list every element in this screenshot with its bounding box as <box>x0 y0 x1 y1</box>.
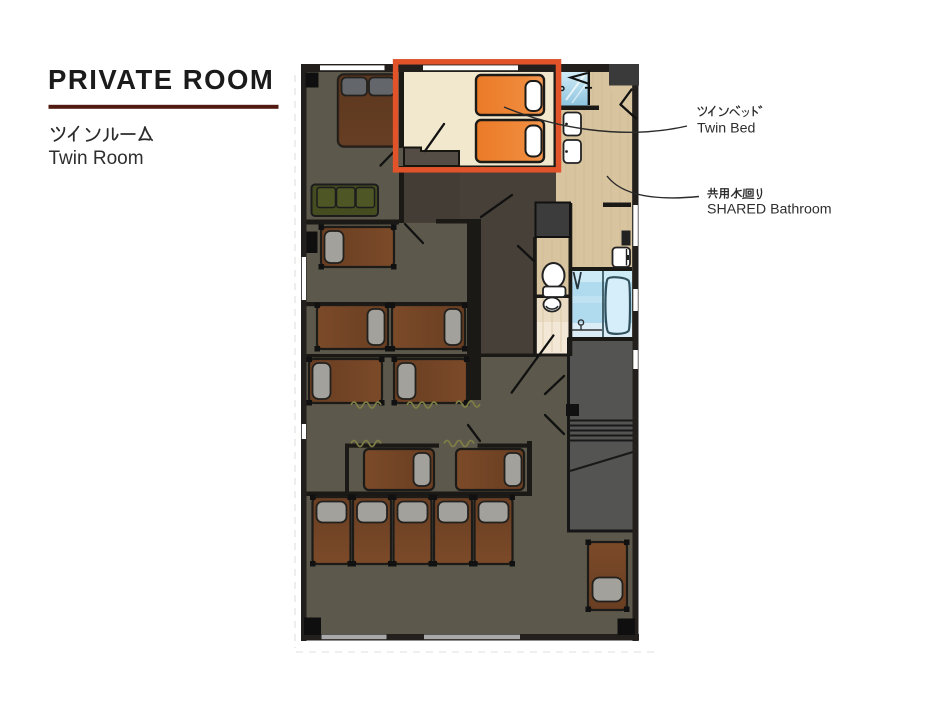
svg-text:Twin Room: Twin Room <box>49 148 144 169</box>
svg-text:PRIVATE ROOM: PRIVATE ROOM <box>48 64 274 95</box>
svg-text:Twin Bed: Twin Bed <box>697 121 755 137</box>
svg-text:SHARED Bathroom: SHARED Bathroom <box>707 202 832 218</box>
